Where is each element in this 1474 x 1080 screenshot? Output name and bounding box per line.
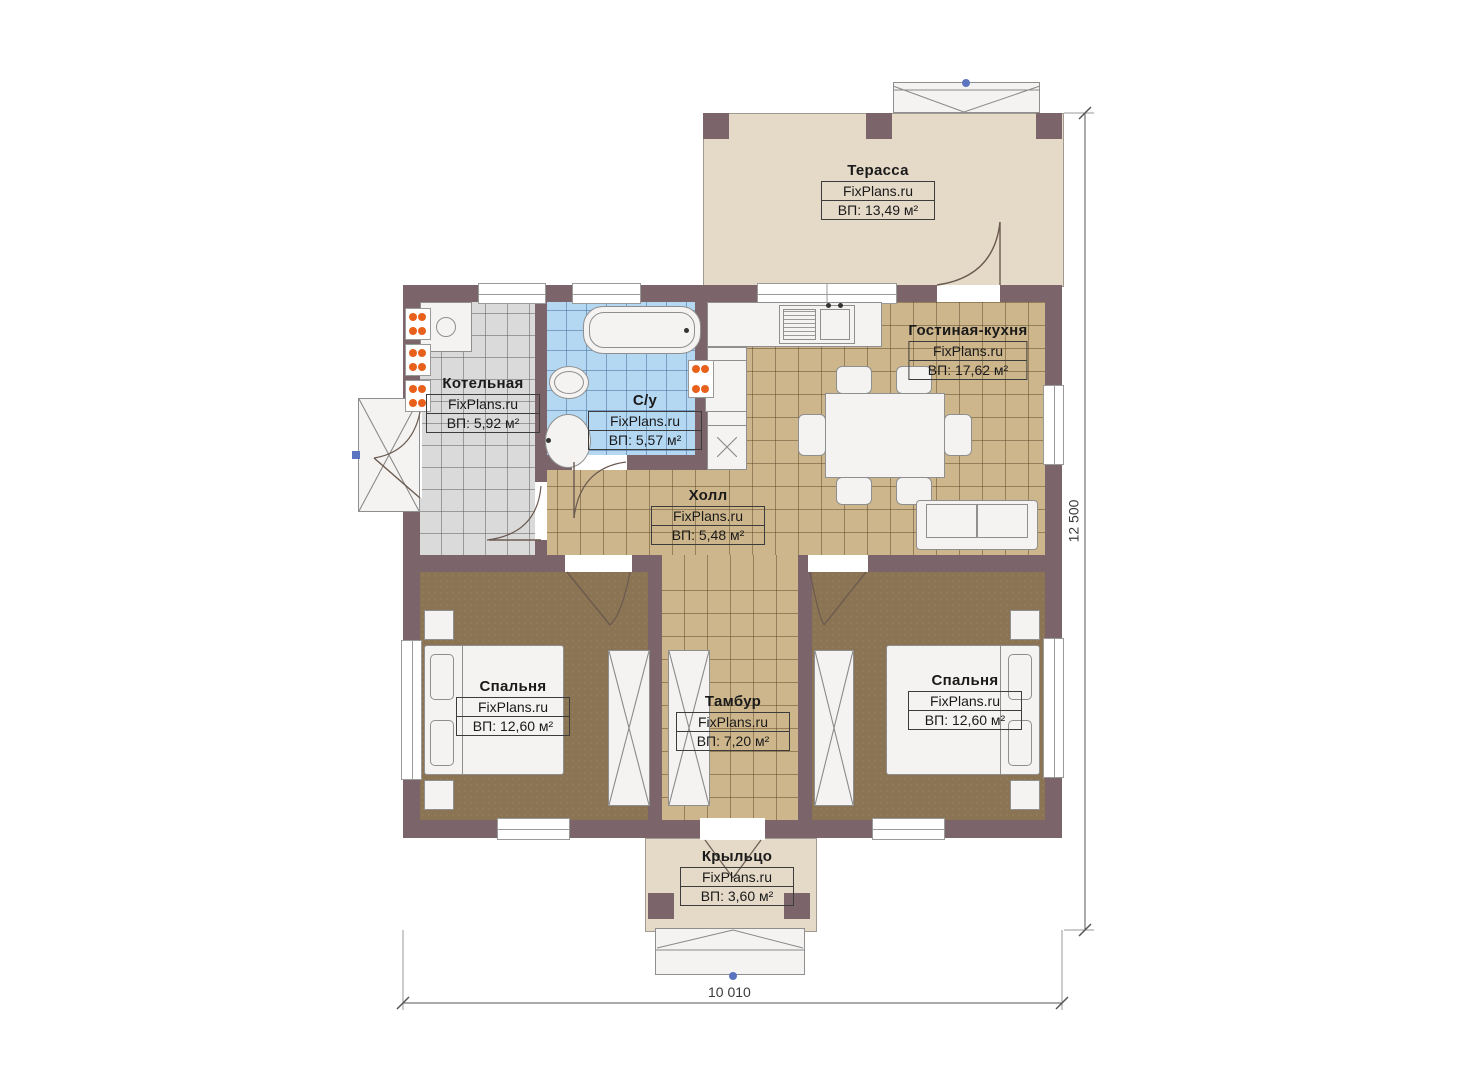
brand-label: FixPlans.ru [589, 412, 701, 430]
bedroom-left-door-opening [565, 555, 632, 572]
window [478, 283, 546, 304]
bedroom-right-door-opening [808, 555, 868, 572]
brand-label: FixPlans.ru [427, 395, 539, 413]
room-area: ВП: 3,60 м² [681, 886, 793, 905]
room-info-box: FixPlans.ru ВП: 12,60 м² [456, 697, 570, 736]
room-label-living-kitchen: Гостиная-кухня FixPlans.ru ВП: 17,62 м² [908, 322, 1027, 380]
steps-marker [962, 79, 970, 87]
vestibule-opening [662, 555, 798, 572]
cabinet-x-icon [717, 437, 737, 457]
room-area: ВП: 5,57 м² [589, 430, 701, 449]
room-info-box: FixPlans.ru ВП: 5,48 м² [651, 506, 765, 545]
pedestal-sink-icon [545, 414, 591, 468]
terrace-column [1036, 113, 1062, 139]
boiler-hall-door-opening [535, 482, 547, 540]
window [1043, 638, 1064, 778]
sink-faucet-icon [546, 438, 551, 443]
room-label-hall: Холл FixPlans.ru ВП: 5,48 м² [651, 487, 765, 545]
brand-label: FixPlans.ru [681, 868, 793, 886]
room-area: ВП: 5,92 м² [427, 413, 539, 432]
porch-steps [655, 928, 805, 975]
chair-icon [836, 477, 872, 505]
radiator-icon [405, 308, 431, 340]
room-info-box: FixPlans.ru ВП: 5,57 м² [588, 411, 702, 450]
kitchen-faucet-icon [826, 303, 831, 308]
room-name: Терасса [821, 162, 935, 179]
room-label-bedroom-right: Спальня FixPlans.ru ВП: 12,60 м² [908, 672, 1022, 730]
brand-label: FixPlans.ru [909, 692, 1021, 710]
brand-label: FixPlans.ru [652, 507, 764, 525]
floor-plan: Терасса FixPlans.ru ВП: 13,49 м² Гостина… [0, 0, 1474, 1080]
room-area: ВП: 12,60 м² [457, 716, 569, 735]
entrance-door-opening [700, 818, 765, 840]
nightstand-icon [424, 610, 454, 640]
room-info-box: FixPlans.ru ВП: 5,92 м² [426, 394, 540, 433]
room-name: Гостиная-кухня [908, 322, 1027, 339]
brand-label: FixPlans.ru [677, 713, 789, 731]
room-name: Спальня [908, 672, 1022, 689]
room-info-box: FixPlans.ru ВП: 7,20 м² [676, 712, 790, 751]
wardrobe-icon [814, 650, 854, 806]
window [872, 818, 945, 840]
boiler-sink-icon [436, 317, 456, 337]
room-name: С/у [588, 392, 702, 409]
room-name: Крыльцо [680, 848, 794, 865]
room-label-vestibule: Тамбур FixPlans.ru ВП: 7,20 м² [676, 693, 790, 751]
room-label-terrace: Терасса FixPlans.ru ВП: 13,49 м² [821, 162, 935, 220]
room-label-bedroom-left: Спальня FixPlans.ru ВП: 12,60 м² [456, 678, 570, 736]
terrace-door-opening [937, 285, 1000, 302]
dimension-width: 10 010 [708, 984, 751, 1000]
chair-icon [944, 414, 972, 456]
nightstand-icon [1010, 780, 1040, 810]
steps-marker [729, 972, 737, 980]
chair-icon [836, 366, 872, 394]
brand-label: FixPlans.ru [909, 342, 1026, 360]
room-name: Холл [651, 487, 765, 504]
room-area: ВП: 5,48 м² [652, 525, 764, 544]
room-name: Спальня [456, 678, 570, 695]
brand-label: FixPlans.ru [822, 182, 934, 200]
pillow-icon [430, 654, 454, 700]
room-info-box: FixPlans.ru ВП: 13,49 м² [821, 181, 935, 220]
window-double [757, 283, 897, 304]
kitchen-faucet-icon [838, 303, 843, 308]
room-area: ВП: 7,20 м² [677, 731, 789, 750]
dimension-height: 12 500 [1065, 500, 1081, 543]
wall-bedroom-left-vestibule [648, 572, 662, 820]
room-area: ВП: 17,62 м² [909, 360, 1026, 379]
side-steps [358, 398, 420, 512]
room-area: ВП: 12,60 м² [909, 710, 1021, 729]
porch-column [648, 893, 674, 919]
sofa-cushion [977, 504, 1028, 538]
toilet-icon [549, 366, 589, 399]
room-area: ВП: 13,49 м² [822, 200, 934, 219]
room-label-boiler: Котельная FixPlans.ru ВП: 5,92 м² [426, 375, 540, 433]
sofa-cushion [926, 504, 977, 538]
terrace-column [866, 113, 892, 139]
room-info-box: FixPlans.ru ВП: 3,60 м² [680, 867, 794, 906]
window [1043, 385, 1064, 465]
nightstand-icon [1010, 610, 1040, 640]
room-name: Тамбур [676, 693, 790, 710]
pillow-icon [430, 720, 454, 766]
window [497, 818, 570, 840]
brand-label: FixPlans.ru [457, 698, 569, 716]
sink-basin-icon [820, 309, 850, 340]
wall-vestibule-bedroom-right [798, 572, 812, 820]
nightstand-icon [424, 780, 454, 810]
wardrobe-icon [608, 650, 650, 806]
bathtub-faucet-icon [684, 328, 689, 333]
room-info-box: FixPlans.ru ВП: 17,62 м² [908, 341, 1027, 380]
room-name: Котельная [426, 375, 540, 392]
room-label-porch: Крыльцо FixPlans.ru ВП: 3,60 м² [680, 848, 794, 906]
sink-drainer-icon [783, 309, 816, 340]
chair-icon [798, 414, 826, 456]
window [401, 640, 422, 780]
room-label-bathroom: С/у FixPlans.ru ВП: 5,57 м² [588, 392, 702, 450]
steps-marker [352, 451, 360, 459]
room-info-box: FixPlans.ru ВП: 12,60 м² [908, 691, 1022, 730]
terrace-column [703, 113, 729, 139]
radiator-icon [405, 344, 431, 376]
dining-table [825, 393, 945, 478]
window [572, 283, 641, 304]
